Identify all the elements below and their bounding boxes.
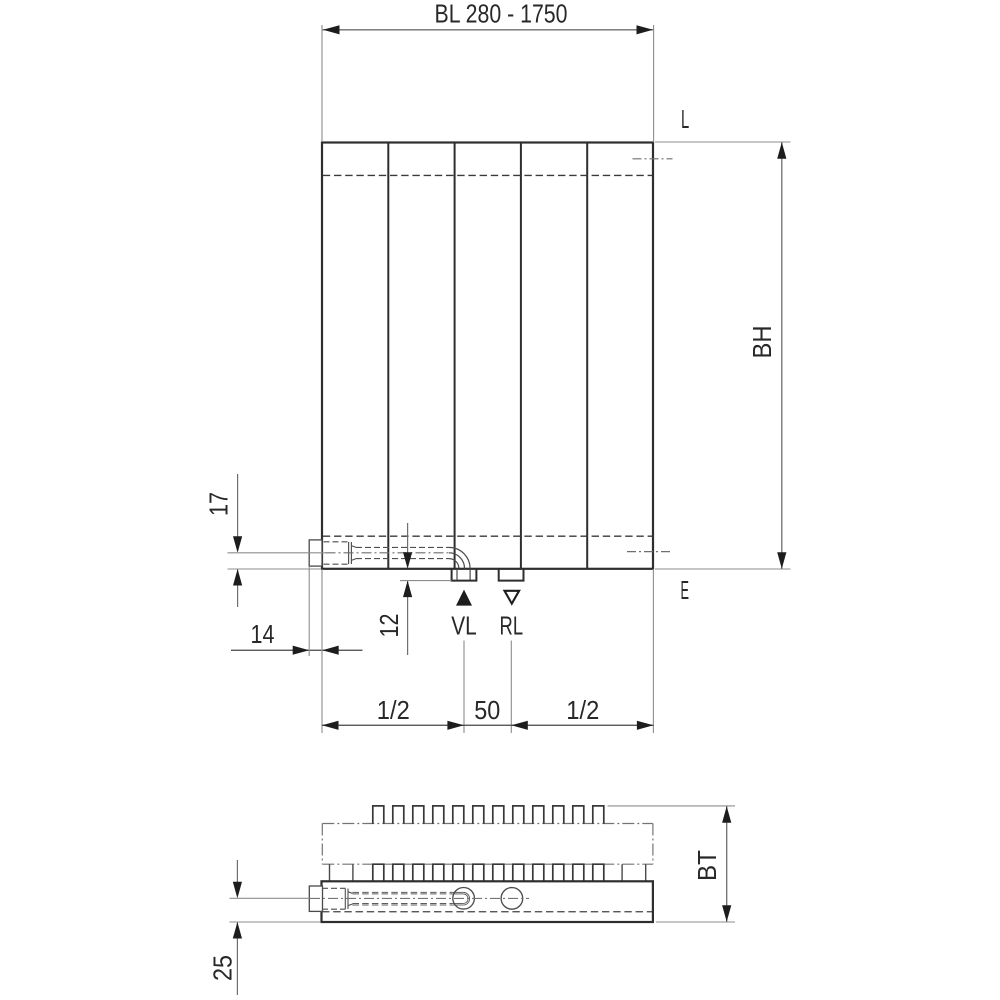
svg-text:1/2: 1/2	[566, 697, 599, 725]
svg-text:E: E	[681, 577, 690, 605]
svg-text:RL: RL	[500, 612, 524, 640]
svg-text:BL 280 - 1750: BL 280 - 1750	[435, 1, 568, 29]
svg-text:1/2: 1/2	[377, 697, 410, 725]
svg-text:25: 25	[210, 955, 238, 981]
svg-text:50: 50	[474, 697, 500, 725]
svg-text:VL: VL	[451, 612, 477, 640]
svg-text:17: 17	[206, 492, 234, 516]
svg-text:BH: BH	[749, 326, 777, 359]
svg-text:14: 14	[251, 621, 275, 649]
svg-text:L: L	[681, 106, 689, 134]
svg-text:BT: BT	[694, 850, 722, 881]
svg-text:12: 12	[376, 614, 404, 638]
